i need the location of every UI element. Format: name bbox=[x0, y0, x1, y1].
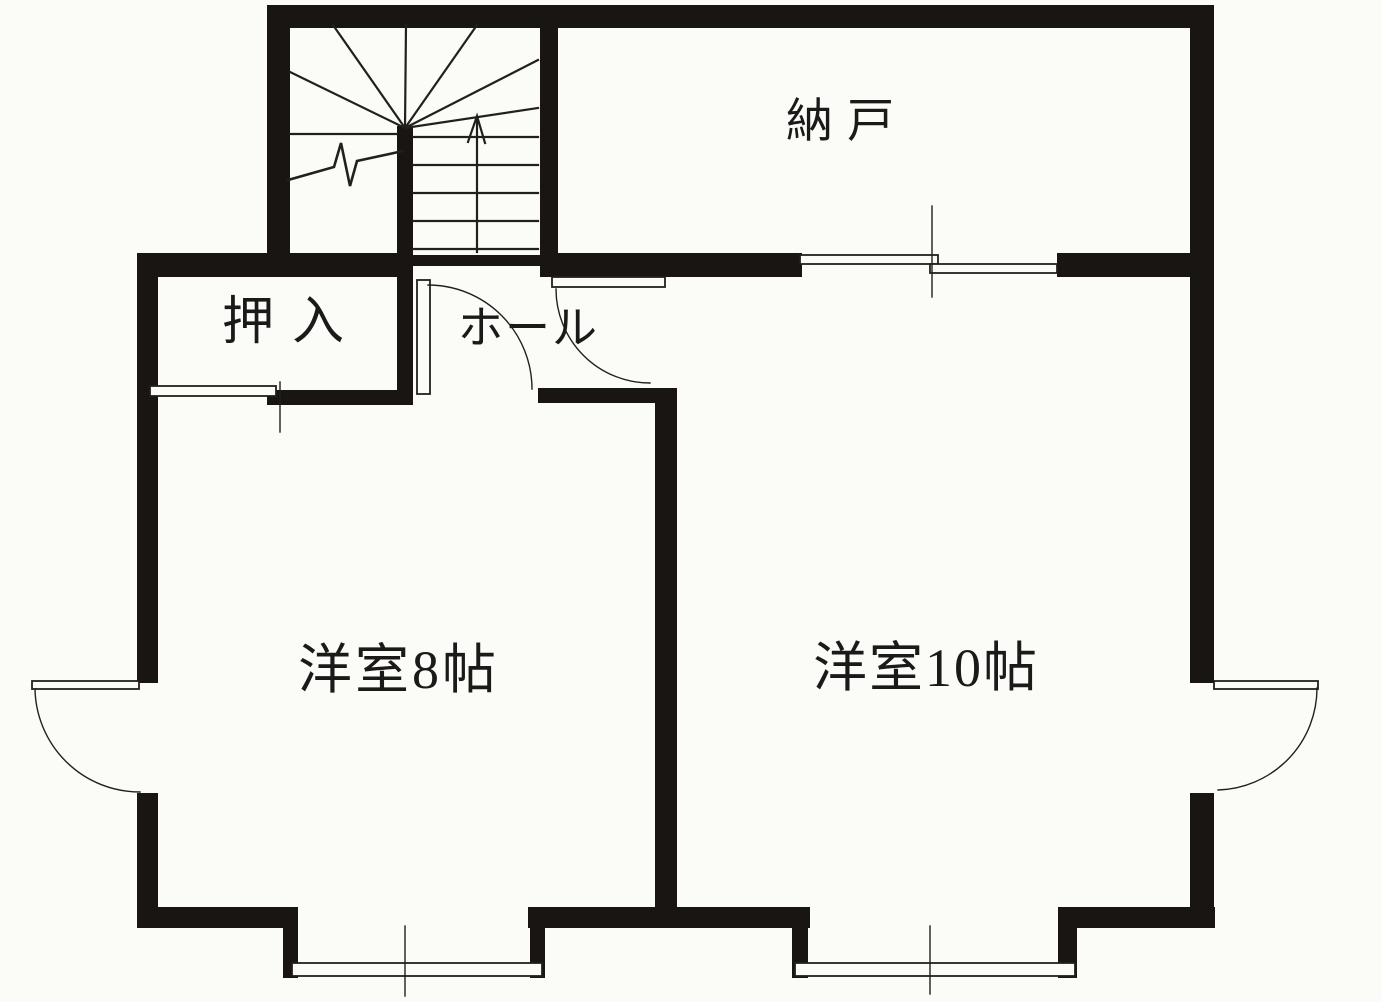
room-label-western8: 洋室8帖 bbox=[298, 643, 499, 697]
wall-left-lower bbox=[137, 793, 158, 927]
walls bbox=[137, 5, 1215, 978]
room-label-western10: 洋室10帖 bbox=[813, 641, 1039, 695]
room-label-closet: 押入 bbox=[222, 297, 362, 349]
left-window-leaf bbox=[32, 681, 139, 689]
wall-top bbox=[267, 5, 1213, 28]
storage-sliding-door-panel bbox=[800, 255, 938, 264]
wall-hall-top bbox=[540, 253, 802, 277]
wall-bottom-middle bbox=[528, 907, 810, 928]
wall-stair-spine bbox=[397, 126, 413, 405]
bay-windows bbox=[292, 926, 1075, 996]
wall-right-lower bbox=[1190, 793, 1214, 927]
wall-stair-exit-header bbox=[400, 255, 545, 266]
right-window-swing-arc bbox=[1218, 688, 1317, 790]
wall-storage-left bbox=[540, 26, 558, 277]
floor-plan-canvas bbox=[0, 0, 1382, 1002]
storage-sliding-door-panel bbox=[930, 264, 1057, 273]
stair-winder-tread-line bbox=[290, 72, 405, 128]
floor-plan-page: 納戸 押入 ホール 洋室8帖 洋室10帖 bbox=[0, 0, 1382, 1002]
wall-closet-top bbox=[137, 253, 407, 277]
wall-storage-bottom-right bbox=[1057, 253, 1190, 277]
wall-center-partition bbox=[655, 388, 677, 927]
stair-winder-tread-line bbox=[405, 25, 406, 128]
stair-winder-tread-line bbox=[405, 25, 477, 128]
bay-window-left-sill bbox=[292, 963, 542, 976]
wall-bottom-right bbox=[1058, 907, 1215, 928]
closet-sliding-door-panel bbox=[150, 386, 276, 396]
room-label-storage: 納戸 bbox=[786, 99, 908, 146]
room10-door-leaf bbox=[552, 277, 665, 287]
wall-closet-bottom bbox=[267, 390, 413, 405]
wall-left-upper bbox=[137, 253, 158, 683]
right-window-leaf bbox=[1214, 681, 1318, 689]
stair-break-line-icon bbox=[288, 143, 403, 186]
wall-bottom-left bbox=[137, 907, 297, 928]
bay-window-right-sill bbox=[795, 963, 1075, 976]
left-window-swing-arc bbox=[35, 689, 140, 792]
wall-right-upper bbox=[1190, 5, 1214, 683]
room-label-hall: ホール bbox=[458, 306, 599, 351]
room8-door-leaf bbox=[417, 280, 430, 394]
wall-stair-left bbox=[267, 5, 290, 260]
stair-winder-tread-line bbox=[333, 25, 405, 128]
